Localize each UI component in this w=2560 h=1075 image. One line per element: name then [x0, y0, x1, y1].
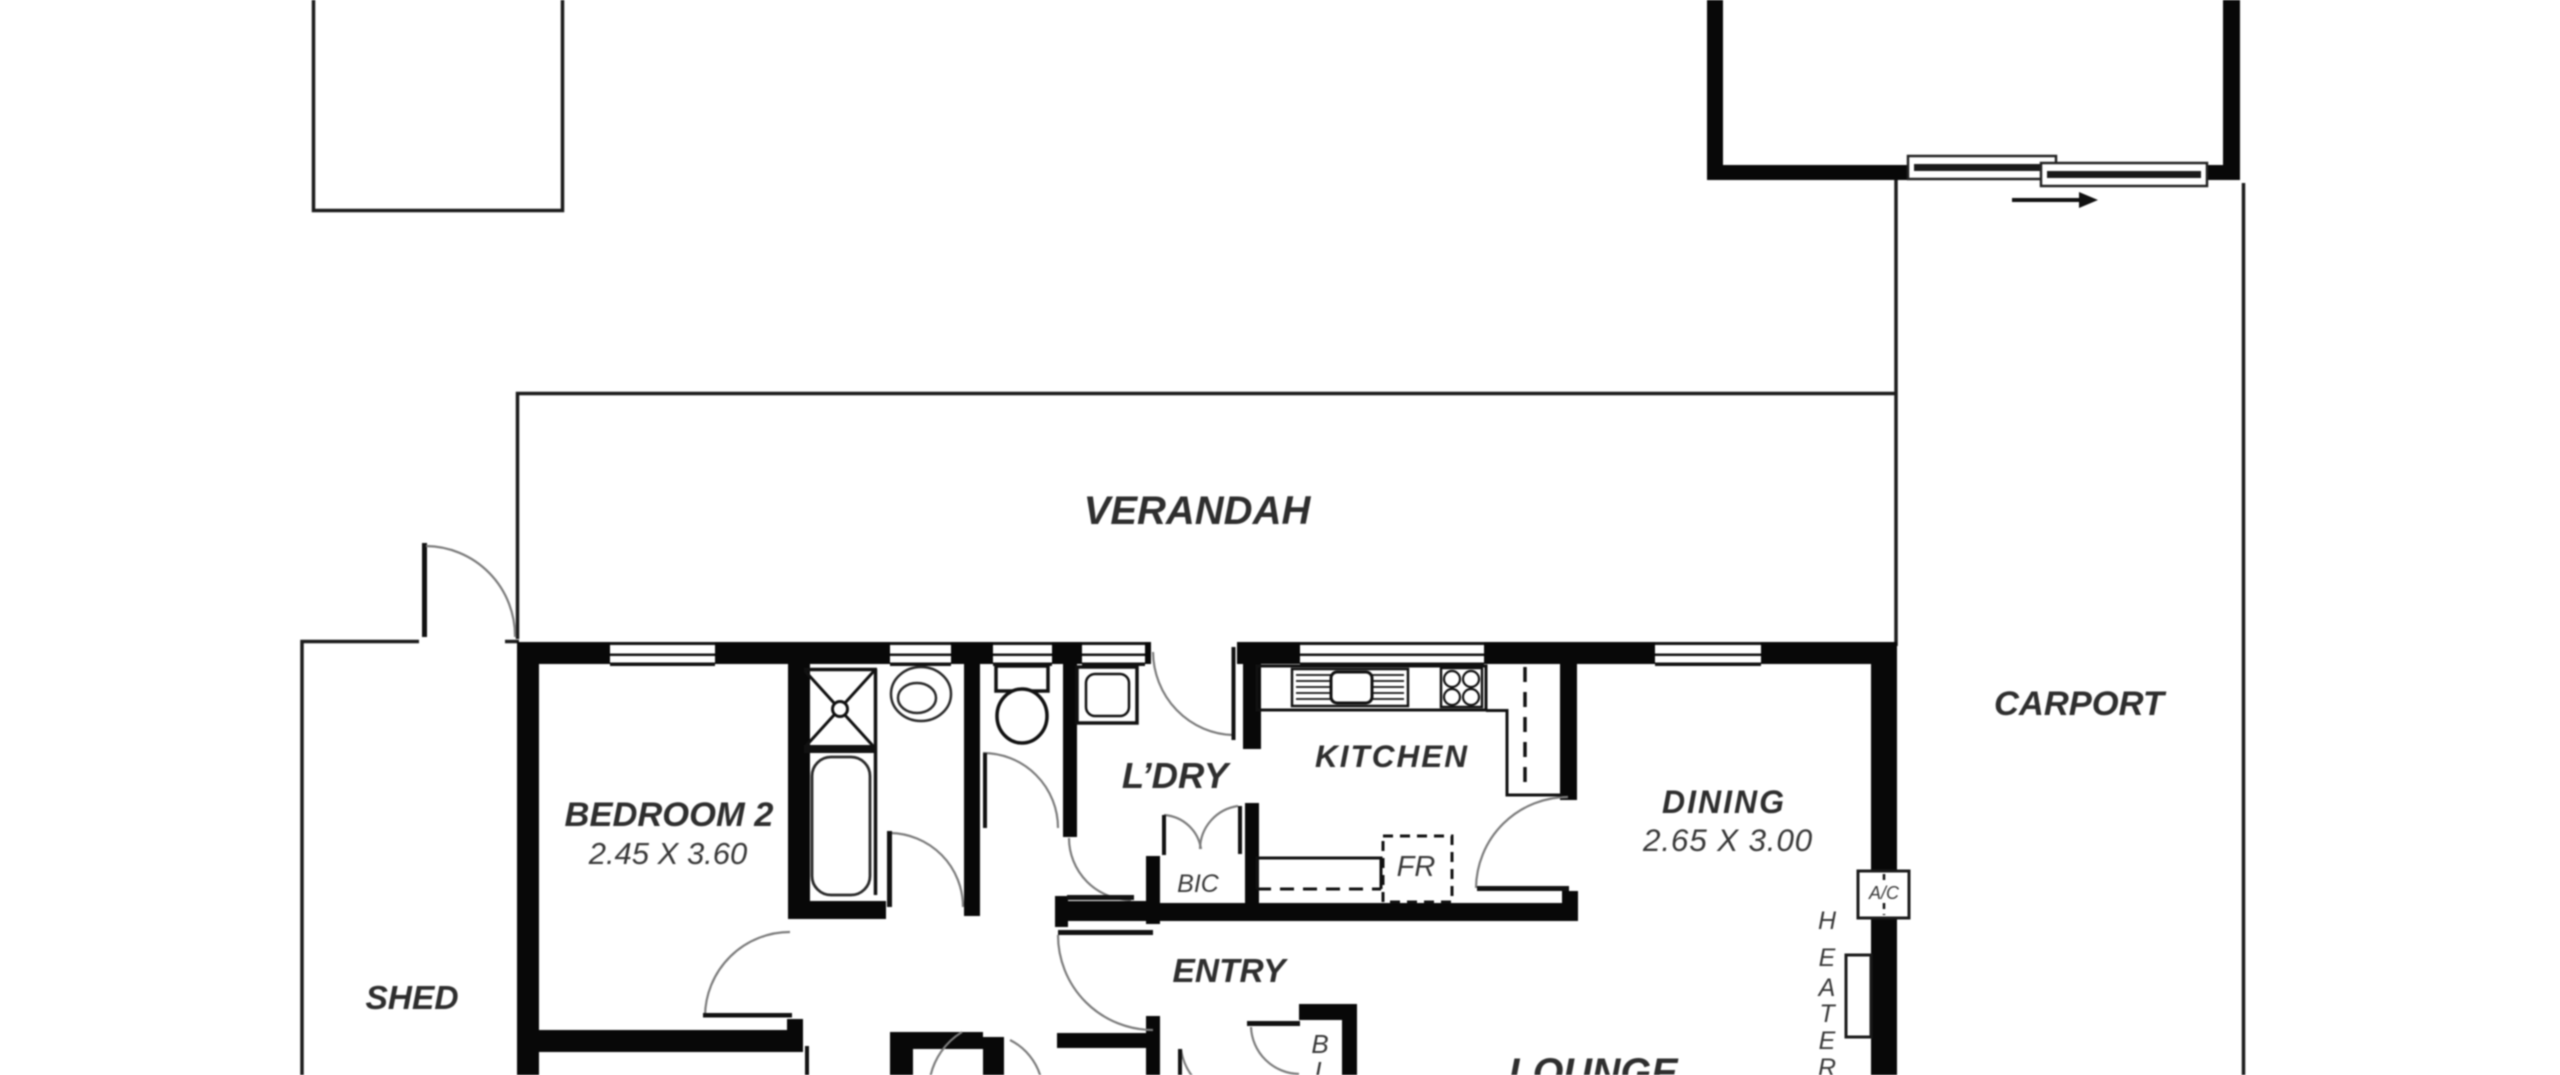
svg-text:VERANDAH: VERANDAH [1084, 489, 1312, 533]
svg-text:2.65 X 3.00: 2.65 X 3.00 [1642, 822, 1813, 858]
svg-text:2.45 X 3.60: 2.45 X 3.60 [588, 836, 748, 871]
svg-text:BIC: BIC [1177, 870, 1220, 898]
svg-text:FR: FR [1397, 851, 1436, 883]
svg-text:B: B [1311, 1029, 1328, 1059]
svg-text:BEDROOM 2: BEDROOM 2 [565, 796, 774, 834]
svg-text:I: I [1314, 1056, 1321, 1075]
svg-text:KITCHEN: KITCHEN [1315, 738, 1469, 774]
svg-text:DINING: DINING [1662, 784, 1786, 820]
svg-text:CARPORT: CARPORT [1994, 685, 2167, 723]
svg-text:LOUNGE: LOUNGE [1509, 1051, 1680, 1075]
svg-text:SHED: SHED [365, 980, 458, 1017]
svg-text:ENTRY: ENTRY [1173, 953, 1289, 990]
svg-text:E: E [1819, 944, 1836, 972]
svg-text:H: H [1818, 907, 1837, 935]
svg-text:L’DRY: L’DRY [1122, 755, 1232, 796]
svg-text:A: A [1817, 974, 1836, 1002]
svg-text:E: E [1819, 1027, 1836, 1055]
svg-text:R: R [1818, 1054, 1836, 1075]
svg-text:A/C: A/C [1868, 883, 1900, 903]
svg-text:T: T [1819, 1000, 1836, 1028]
